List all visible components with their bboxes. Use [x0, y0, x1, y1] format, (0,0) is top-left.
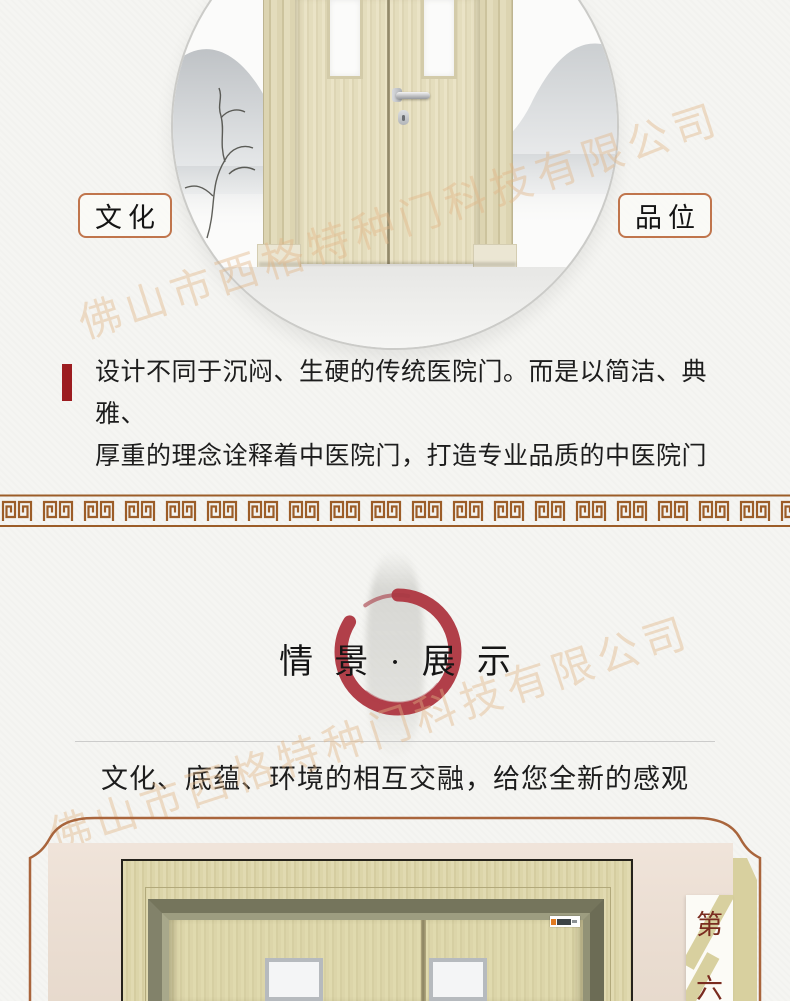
- hero-door-image: [171, 0, 619, 350]
- section-subtitle: 文化、底蕴、环境的相互交融，给您全新的感观: [0, 757, 790, 796]
- door-frame-left: [263, 0, 296, 268]
- door-leaves: [169, 920, 583, 1001]
- tag-char-bottom: 六: [686, 967, 733, 1001]
- intro-block: 设计不同于沉闷、生硬的传统医院门。而是以简洁、典雅、 厚重的理念诠释着中医院门，…: [62, 352, 742, 478]
- door-window: [327, 0, 363, 79]
- bookmark-ribbon: [733, 858, 757, 1001]
- door-handle-icon: [396, 92, 430, 99]
- divider-line: [75, 741, 715, 742]
- floor: [173, 267, 617, 350]
- taste-badge: 品位: [618, 193, 712, 238]
- intro-line-1: 设计不同于沉闷、生硬的传统医院门。而是以简洁、典雅、: [95, 352, 742, 436]
- door-lock-cylinder: [398, 110, 409, 125]
- door-window: [421, 0, 457, 79]
- door-window: [265, 958, 323, 1001]
- door-meeting-stile: [421, 920, 426, 1001]
- section-title: 情景·展示: [0, 634, 790, 683]
- greek-key-border: [0, 494, 790, 528]
- accent-bar: [62, 364, 72, 401]
- page-index-tag: 第 六: [686, 895, 733, 1001]
- door-frame-right: [480, 0, 513, 268]
- culture-badge: 文化: [78, 193, 172, 238]
- scene-photo: [48, 843, 733, 1001]
- door-window: [429, 958, 487, 1001]
- intro-line-2: 厚重的理念诠释着中医院门，打造专业品质的中医院门: [95, 436, 742, 478]
- product-detail-page: 佛山市西格特种门科技有限公司 佛山市西格特种门科技有限公司: [0, 0, 790, 1001]
- photo-frame-line: [631, 859, 633, 1001]
- tag-char-top: 第: [686, 903, 733, 942]
- brand-plate: [550, 916, 580, 927]
- door-meeting-stile: [387, 0, 390, 264]
